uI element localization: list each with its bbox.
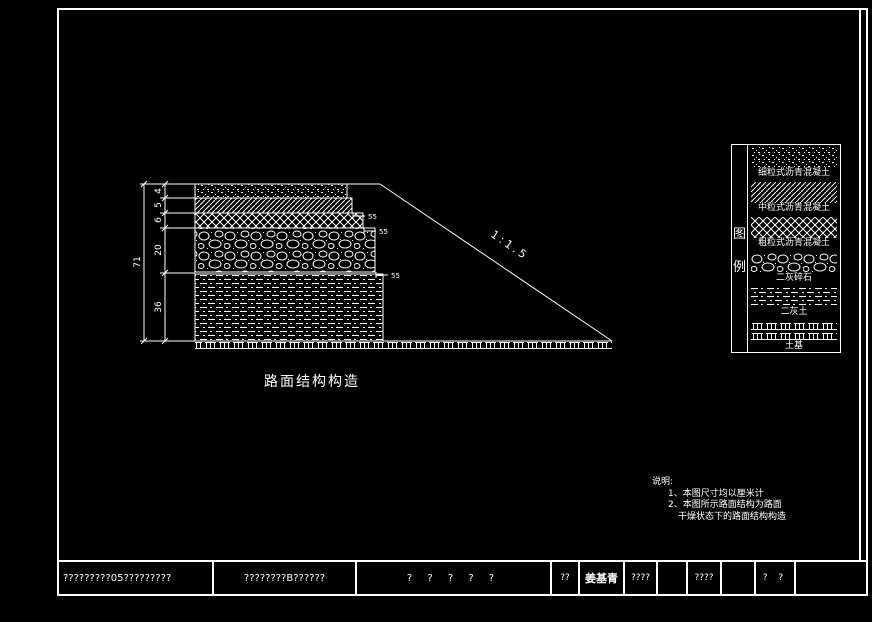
layer-medium-asphalt bbox=[195, 198, 352, 213]
titleblock-signature-cell: 姜基青 bbox=[580, 562, 625, 594]
diagonal-hatch-pattern-icon bbox=[751, 182, 837, 203]
legend-item-subgrade: 土基 bbox=[751, 321, 837, 351]
dimension-extension-lines bbox=[140, 184, 195, 341]
titleblock-cell-6: ???? bbox=[625, 562, 658, 594]
legend-label: 粗粒式沥青混凝土 bbox=[758, 238, 830, 248]
notes-block: 说明: 1、本图尺寸均以厘米计 2、本图所示路面结构为路面 干燥状态下的路面结构… bbox=[652, 477, 786, 523]
dim-layer4: 20 bbox=[154, 244, 164, 256]
dim-layer2: 5 bbox=[154, 202, 164, 208]
dim-total: 71 bbox=[133, 256, 143, 267]
subgrade-pattern-icon bbox=[751, 321, 837, 341]
dim-layer1: 4 bbox=[154, 188, 164, 194]
legend-label: 细粒式沥青混凝土 bbox=[758, 168, 830, 178]
layer-coarse-asphalt bbox=[195, 213, 363, 228]
legend-items: 细粒式沥青混凝土 中粒式沥青混凝土 粗粒式沥青混凝土 二灰碎石 二灰土 土基 bbox=[748, 145, 840, 352]
titleblock-cell-9 bbox=[722, 562, 756, 594]
titleblock-cell-10: ? ? bbox=[756, 562, 796, 594]
step-offset-label-2: 55 bbox=[379, 228, 388, 236]
notes-heading: 说明: bbox=[652, 477, 786, 489]
dim-layer3: 6 bbox=[154, 217, 164, 223]
titleblock-subtitle-cell: ????????B?????? bbox=[214, 562, 357, 594]
embankment-slope-line bbox=[380, 184, 612, 341]
titleblock-cell-8: ???? bbox=[688, 562, 722, 594]
step-offset-label-1: 55 bbox=[368, 213, 377, 221]
notes-line-3: 干燥状态下的路面结构构造 bbox=[678, 512, 786, 524]
legend-label: 中粒式沥青混凝土 bbox=[758, 203, 830, 213]
layer-lime-flyash-gravel bbox=[195, 228, 375, 272]
legend-title: 图 例 bbox=[732, 145, 748, 352]
dash-dot-pattern-icon bbox=[751, 287, 837, 307]
subgrade-hatch-band bbox=[195, 342, 612, 352]
slope-ratio-label: 1:1.5 bbox=[488, 228, 531, 263]
cobble-pattern-icon bbox=[751, 253, 837, 273]
titleblock-cell-11 bbox=[796, 562, 866, 594]
layer-fine-asphalt bbox=[195, 184, 347, 198]
legend-item-lime-flyash-soil: 二灰土 bbox=[751, 287, 837, 317]
legend-item-lime-flyash-gravel: 二灰碎石 bbox=[751, 253, 837, 283]
notes-line-2: 2、本图所示路面结构为路面 bbox=[668, 500, 786, 512]
diamond-hatch-pattern-icon bbox=[751, 217, 837, 238]
title-block: ?????????05????????? ????????B?????? ? ?… bbox=[57, 560, 868, 596]
pavement-cross-section: 1:1.5 4 5 6 20 36 71 55 55 55 bbox=[120, 170, 660, 365]
legend-item-medium-asphalt: 中粒式沥青混凝土 bbox=[751, 182, 837, 213]
titleblock-drawing-name-cell: ? ? ? ? ? bbox=[357, 562, 552, 594]
speckle-pattern-icon bbox=[751, 147, 837, 168]
drawing-caption: 路面结构构造 bbox=[264, 371, 360, 391]
layer-lime-flyash-soil bbox=[195, 274, 383, 341]
notes-line-1: 1、本图尺寸均以厘米计 bbox=[668, 489, 786, 501]
sheet-frame-inner-line bbox=[859, 10, 861, 561]
legend-label: 二灰碎石 bbox=[776, 273, 812, 283]
legend-item-coarse-asphalt: 粗粒式沥青混凝土 bbox=[751, 217, 837, 248]
legend-title-char-2: 例 bbox=[733, 256, 746, 275]
legend-item-fine-asphalt: 细粒式沥青混凝土 bbox=[751, 147, 837, 178]
legend-title-char-1: 图 bbox=[733, 223, 746, 242]
titleblock-cell-4: ?? bbox=[552, 562, 580, 594]
legend-label: 土基 bbox=[785, 341, 803, 351]
titleblock-cell-7 bbox=[658, 562, 688, 594]
dim-layer5: 36 bbox=[154, 301, 164, 313]
legend-box: 图 例 细粒式沥青混凝土 中粒式沥青混凝土 粗粒式沥青混凝土 二灰碎石 bbox=[731, 144, 841, 353]
titleblock-project-cell: ?????????05????????? bbox=[59, 562, 214, 594]
legend-label: 二灰土 bbox=[780, 307, 807, 317]
step-offset-label-3: 55 bbox=[391, 272, 400, 280]
